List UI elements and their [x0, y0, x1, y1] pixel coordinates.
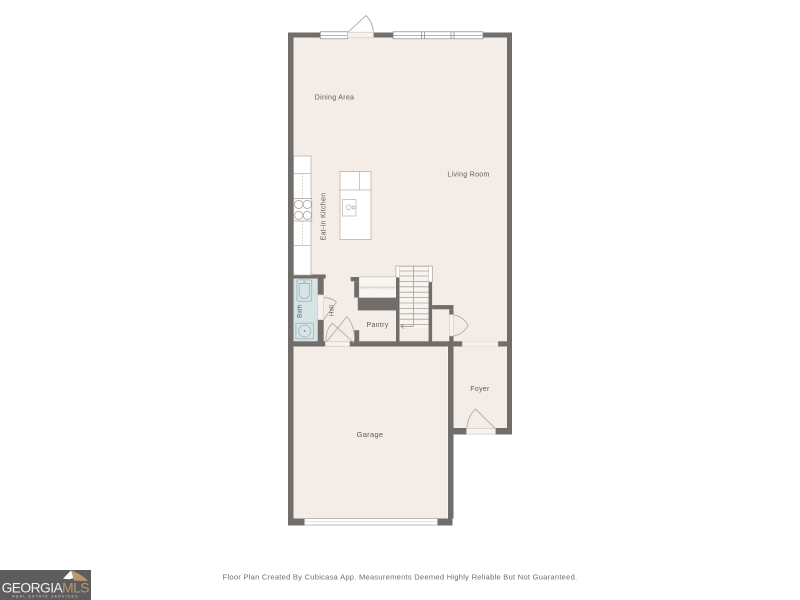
svg-text:Living Room: Living Room [447, 171, 489, 178]
svg-text:Floor Plan Created By Cubicasa: Floor Plan Created By Cubicasa App. Meas… [223, 573, 578, 582]
svg-text:Pantry: Pantry [366, 322, 388, 329]
svg-text:Eat-in Kitchen: Eat-in Kitchen [321, 193, 328, 241]
svg-text:Hall: Hall [330, 305, 336, 316]
svg-text:Garage: Garage [357, 430, 384, 439]
svg-text:Dining Area: Dining Area [315, 95, 355, 102]
svg-text:Foyer: Foyer [470, 386, 490, 393]
svg-text:REAL ESTATE SERVICES: REAL ESTATE SERVICES [12, 595, 78, 599]
svg-text:GEORGIAMLS: GEORGIAMLS [2, 580, 90, 595]
svg-text:Bath: Bath [298, 305, 304, 318]
